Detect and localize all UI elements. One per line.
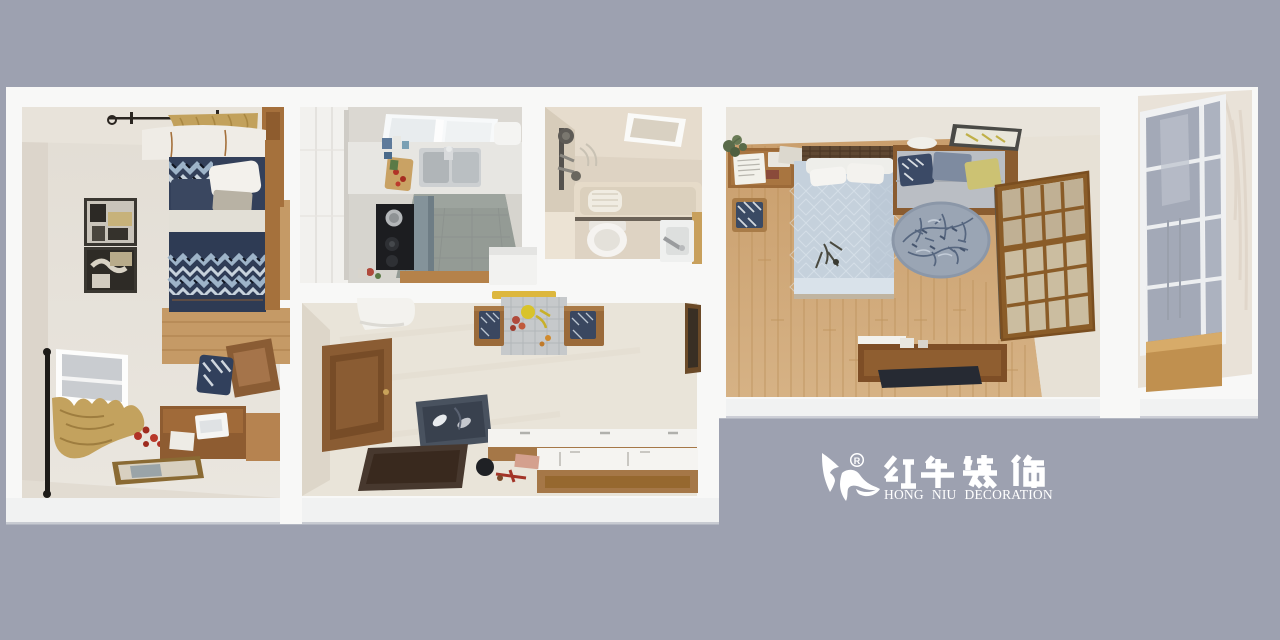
- svg-text:R: R: [854, 456, 861, 466]
- svg-text:HONG NIU DECORATION: HONG NIU DECORATION: [884, 487, 1053, 502]
